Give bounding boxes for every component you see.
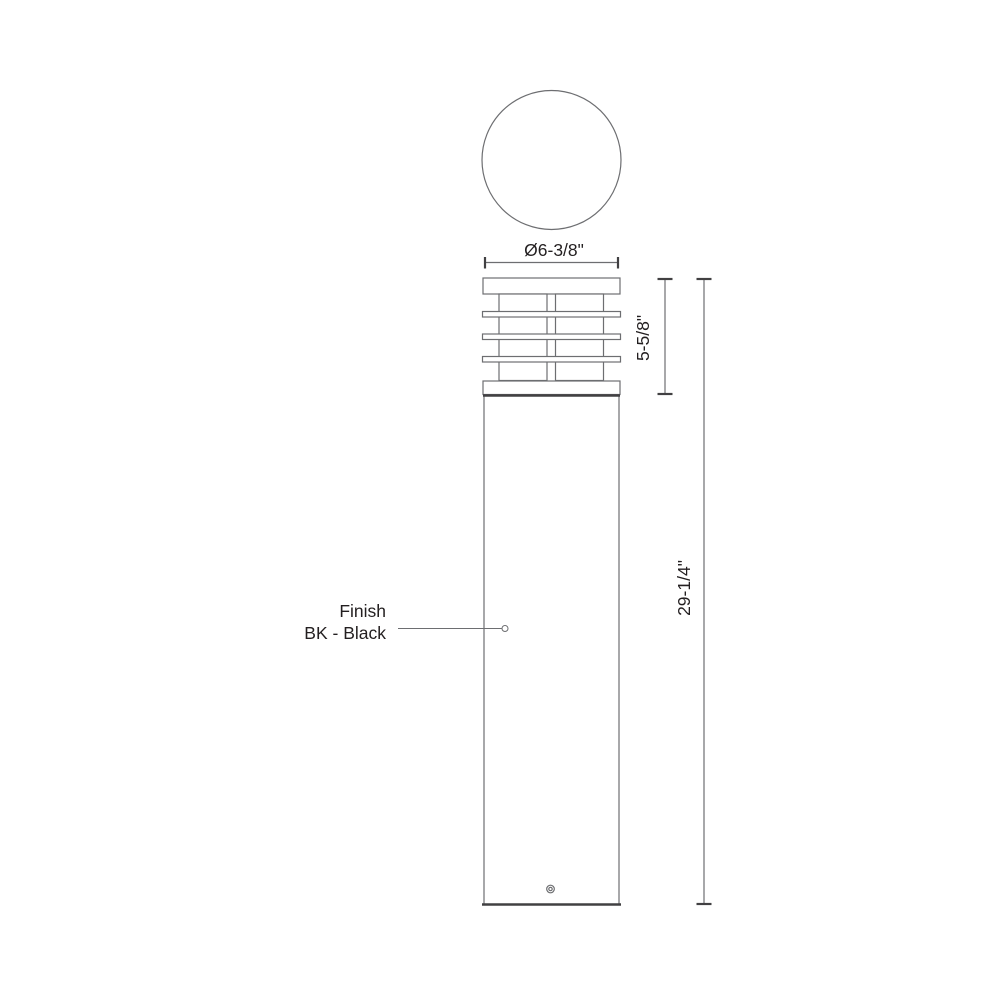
louver-slat-3 [483, 357, 621, 363]
louver-slat-1 [483, 312, 621, 318]
louver-slat-2 [483, 334, 621, 340]
bollard-dimension-drawing: Ø6-3/8" 5-5/8" 29-1/4" Finish BK - Black [0, 0, 1000, 1000]
finish-callout-line2: BK - Black [304, 623, 386, 643]
diameter-dimension-label: Ø6-3/8" [524, 240, 584, 260]
finish-callout-line1: Finish [339, 601, 386, 621]
louver-bottom-cap [483, 381, 620, 395]
louver-height-dimension-label: 5-5/8" [633, 315, 653, 361]
bollard-body [484, 395, 619, 905]
overall-height-dimension-label: 29-1/4" [674, 560, 694, 616]
louver-top-cap [483, 278, 620, 294]
spec-drawing-page: Ø6-3/8" 5-5/8" 29-1/4" Finish BK - Black [0, 0, 1000, 1000]
top-view-circle [482, 91, 621, 230]
